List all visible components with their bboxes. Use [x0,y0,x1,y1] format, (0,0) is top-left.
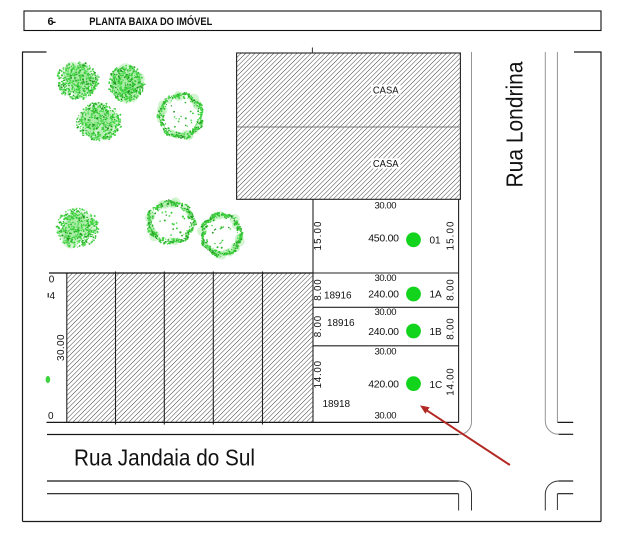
svg-text:1C: 1C [430,380,443,391]
svg-text:240.00: 240.00 [368,326,399,338]
svg-text:8.00: 8.00 [313,315,324,337]
svg-text:0: 0 [48,411,54,422]
svg-text:18916: 18916 [327,318,355,329]
svg-text:30.00: 30.00 [375,201,397,212]
svg-text:450.00: 450.00 [368,233,399,245]
svg-text:8.00: 8.00 [446,318,457,340]
svg-text:420.00: 420.00 [368,379,399,391]
svg-text:15.00: 15.00 [446,221,457,251]
svg-text:30.00: 30.00 [375,307,397,318]
svg-text:18918: 18918 [323,399,351,410]
svg-text:CASA: CASA [373,159,399,170]
svg-text:240.00: 240.00 [368,288,399,300]
svg-text:8.00: 8.00 [313,279,324,301]
svg-text:18916: 18916 [324,290,352,301]
svg-text:Rua Londrina: Rua Londrina [502,61,528,188]
svg-text:30.00: 30.00 [375,347,397,358]
svg-text:14.00: 14.00 [446,368,457,396]
svg-text:30.00: 30.00 [56,334,67,361]
svg-text:1A: 1A [430,290,443,301]
svg-text:6-: 6- [48,16,57,28]
svg-text:14.00: 14.00 [313,360,324,388]
svg-text:4: 4 [50,291,56,302]
svg-text:8.00: 8.00 [446,279,457,301]
svg-text:30.00: 30.00 [375,411,397,422]
svg-text:30.00: 30.00 [375,273,397,284]
svg-text:0: 0 [49,275,55,286]
svg-text:1B: 1B [430,327,443,338]
svg-text:CASA: CASA [373,86,399,97]
svg-text:01: 01 [430,236,442,247]
svg-text:Rua Jandaia do Sul: Rua Jandaia do Sul [74,445,255,471]
svg-text:PLANTA BAIXA DO IMÓVEL: PLANTA BAIXA DO IMÓVEL [89,15,212,28]
svg-text:15.00: 15.00 [313,221,324,251]
